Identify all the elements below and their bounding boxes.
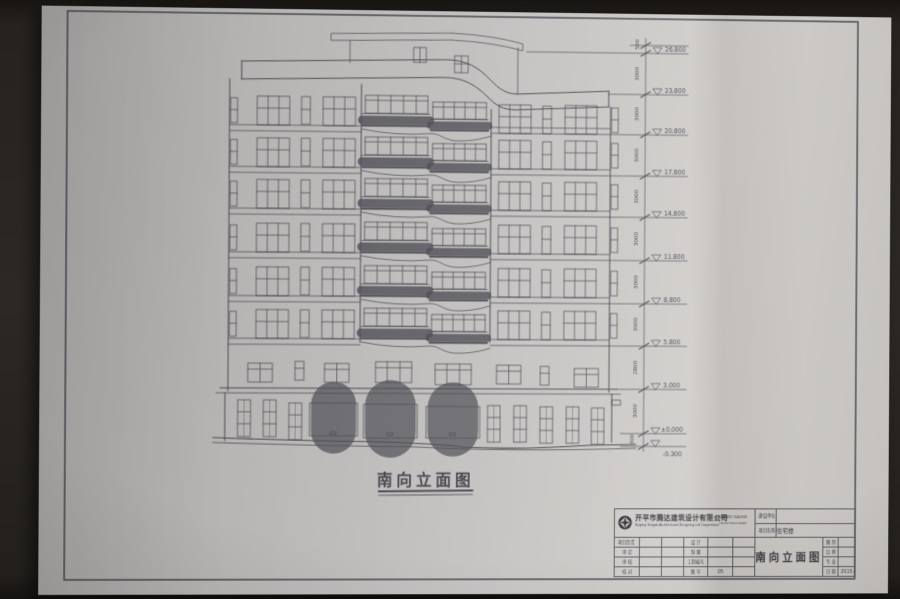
dim-value: 3000 bbox=[635, 66, 641, 80]
dim-value: 2800 bbox=[633, 360, 639, 374]
role-label: 审 核 bbox=[614, 557, 639, 567]
role-label: 审 定 bbox=[614, 547, 639, 557]
level-label: -0.300 bbox=[663, 451, 682, 458]
project-label: 项目名称 bbox=[755, 523, 776, 537]
role-label: 项目负责 bbox=[614, 537, 639, 547]
roller-shutter bbox=[309, 403, 357, 436]
dimension-chain: 26.800 23.800 20.800 17.800 14.800 11.80… bbox=[524, 37, 688, 458]
building-elevation bbox=[213, 30, 638, 450]
company-cert-line: 资质证书编号 C0440708 bbox=[715, 515, 755, 519]
level-label: 11.800 bbox=[664, 254, 685, 261]
roller-shutter bbox=[363, 404, 417, 438]
roof-parapet-band bbox=[241, 57, 609, 111]
dimension-values: 500 3000 3000 3000 3000 3000 3000 3000 2… bbox=[630, 39, 641, 445]
second-floor-windows bbox=[248, 361, 599, 387]
mid-value bbox=[708, 557, 733, 567]
dim-value: 500 bbox=[635, 39, 641, 50]
level-label: 14.800 bbox=[664, 211, 685, 218]
level-label: ±0.000 bbox=[661, 427, 683, 434]
dim-value: 3000 bbox=[633, 404, 639, 418]
dim-value: 3000 bbox=[634, 189, 640, 203]
mid-label: 图 号 bbox=[684, 567, 708, 577]
drawing-sheet: 26.800 23.800 20.800 17.800 14.800 11.80… bbox=[0, 0, 880, 599]
title-block: 开平市腾达建筑设计有限公司 Kaiping Tengda Architectur… bbox=[614, 508, 855, 577]
penthouse bbox=[331, 31, 523, 94]
titleblock-drawing-name: 南向立面图 bbox=[755, 537, 823, 576]
mid-label: 工程编号 bbox=[684, 557, 708, 567]
level-label: 17.800 bbox=[664, 169, 685, 176]
shopfront-canopy bbox=[216, 388, 621, 443]
right-value bbox=[838, 557, 855, 567]
mid-value bbox=[708, 547, 733, 557]
level-symbols bbox=[651, 48, 662, 447]
level-label: 23.800 bbox=[665, 88, 686, 95]
mid-value bbox=[708, 537, 733, 547]
dim-value: 3000 bbox=[634, 148, 640, 162]
ground-floor bbox=[237, 400, 604, 445]
sheet-number: 05 bbox=[708, 567, 733, 577]
dim-value: 3000 bbox=[634, 232, 640, 246]
dim-value: 3000 bbox=[633, 317, 639, 331]
mid-label: 设 计 bbox=[684, 537, 708, 547]
mid-label: 制 图 bbox=[684, 547, 708, 557]
date-value: 2015.05 bbox=[838, 567, 855, 577]
project-value: 住宅楼 bbox=[776, 523, 855, 537]
company-logo-icon bbox=[618, 515, 633, 534]
company-name-cn: 开平市腾达建筑设计有限公司 bbox=[635, 513, 728, 523]
right-value bbox=[838, 537, 855, 547]
level-label: 26.800 bbox=[665, 47, 686, 54]
role-label: 校 对 bbox=[614, 567, 639, 577]
photo-of-drawing: 26.800 23.800 20.800 17.800 14.800 11.80… bbox=[0, 0, 900, 599]
right-label: 图 别 bbox=[823, 537, 838, 547]
title-block-top: 开平市腾达建筑设计有限公司 Kaiping Tengda Architectur… bbox=[614, 508, 856, 538]
roller-shutter bbox=[426, 406, 480, 438]
client-value bbox=[776, 509, 855, 523]
right-label: 专 业 bbox=[823, 557, 838, 567]
company-tel-line: TEL:(0750)2210463 bbox=[719, 522, 755, 525]
right-value bbox=[838, 547, 855, 557]
level-label: 5.800 bbox=[663, 339, 680, 346]
dim-value: 3000 bbox=[634, 275, 640, 289]
dim-value: 3000 bbox=[635, 107, 641, 121]
level-label: 3.000 bbox=[663, 383, 680, 390]
company-cell: 开平市腾达建筑设计有限公司 Kaiping Tengda Architectur… bbox=[614, 509, 755, 538]
drawing-title-group: 南向立面图 bbox=[377, 471, 475, 496]
right-label: 比 例 bbox=[823, 547, 838, 557]
level-label: 8.800 bbox=[664, 297, 681, 304]
client-label: 建设单位 bbox=[755, 509, 776, 523]
right-label: 日 期 bbox=[823, 567, 838, 577]
dim-value: 300 bbox=[630, 434, 636, 445]
title-block-main: 项目负责 设 计 南向立面图 图 别 审 定 制 图 比 例 审 核 工程编号 … bbox=[614, 537, 856, 577]
level-label: 20.800 bbox=[665, 128, 686, 135]
level-labels: 26.800 23.800 20.800 17.800 14.800 11.80… bbox=[661, 47, 686, 459]
drawing-title: 南向立面图 bbox=[377, 471, 475, 490]
